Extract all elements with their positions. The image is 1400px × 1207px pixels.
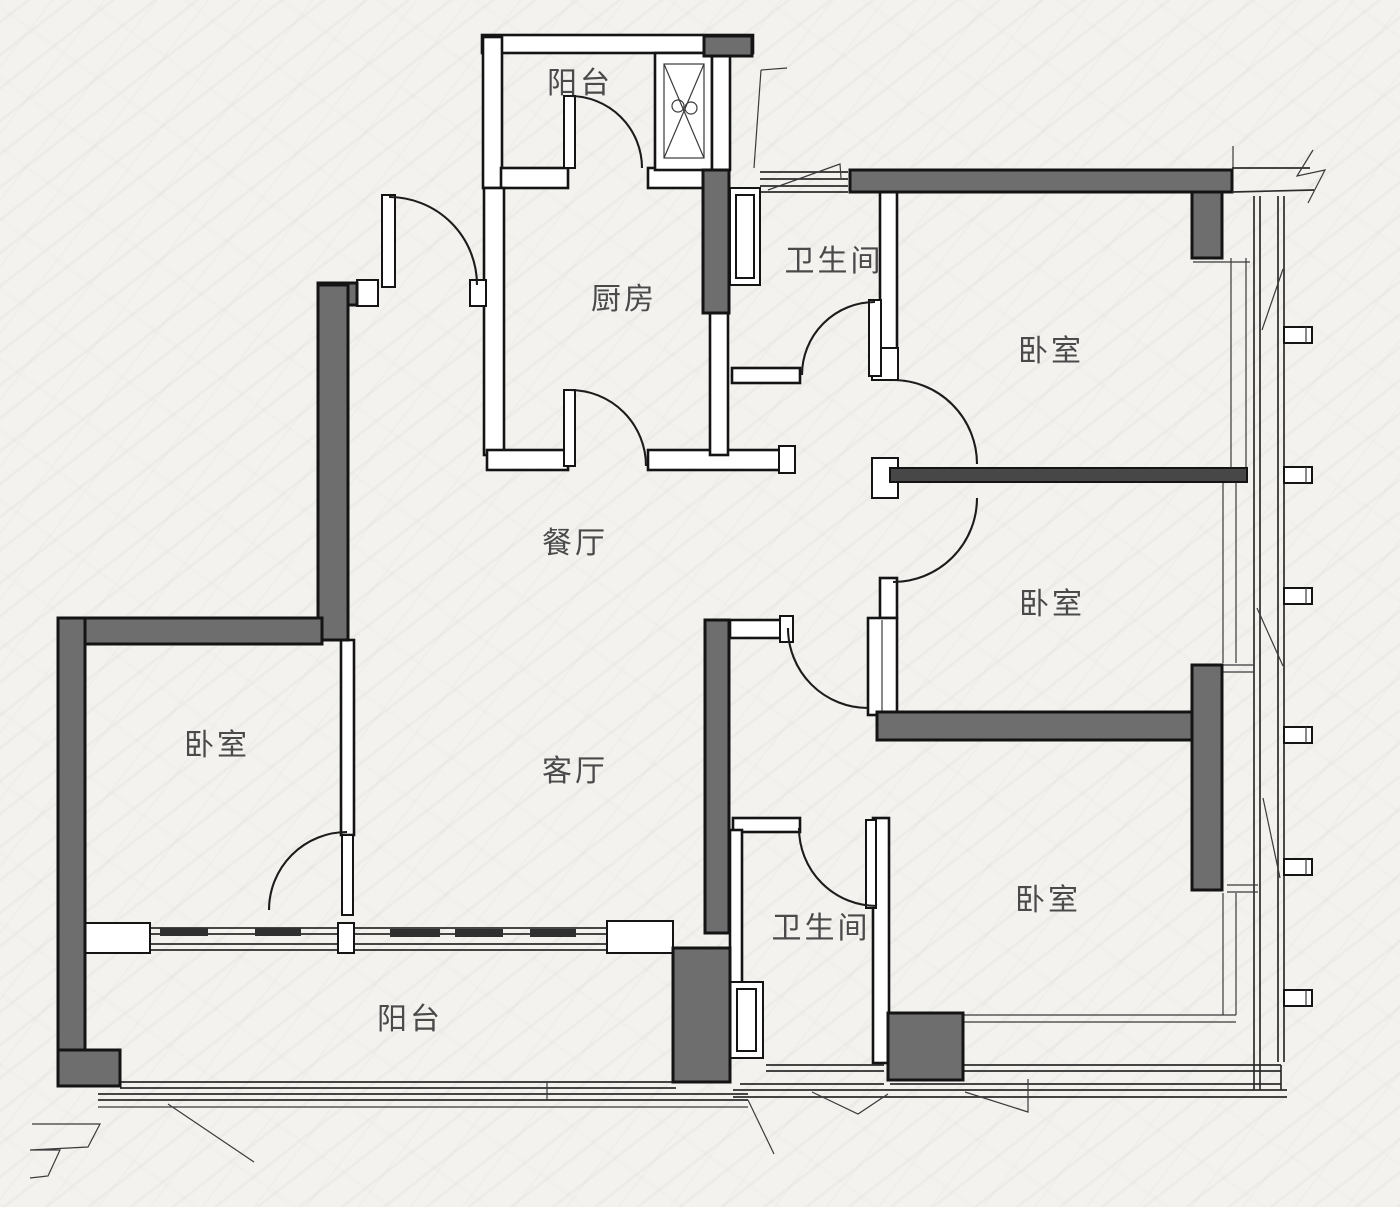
room-label-bedroom-bottom-right: 卧室: [1015, 875, 1081, 919]
window-bracket-icons: [1284, 327, 1312, 1006]
room-label-dining: 餐厅: [542, 518, 608, 562]
casement-opening-marks: [812, 1092, 1028, 1114]
room-label-bedroom-top-right: 卧室: [1018, 326, 1084, 370]
room-label-living: 客厅: [542, 746, 608, 790]
floor-plan-drawing: [0, 0, 1400, 1207]
room-label-kitchen: 厨房: [591, 274, 657, 318]
room-label-bedroom-mid-right: 卧室: [1019, 579, 1085, 623]
door-swings: [269, 68, 977, 910]
floor-plan: 阳台 厨房 卫生间 卧室 餐厅 卧室 卧室 客厅 卫生间 卧室 阳台: [0, 0, 1400, 1207]
window-panel-dashes: [160, 928, 576, 937]
room-label-balcony-bottom: 阳台: [377, 994, 443, 1038]
room-label-bedroom-left: 卧室: [184, 720, 250, 764]
room-label-bathroom-bottom: 卫生间: [772, 903, 871, 947]
room-label-bathroom-top: 卫生间: [785, 236, 884, 280]
room-label-balcony-top: 阳台: [547, 58, 613, 102]
